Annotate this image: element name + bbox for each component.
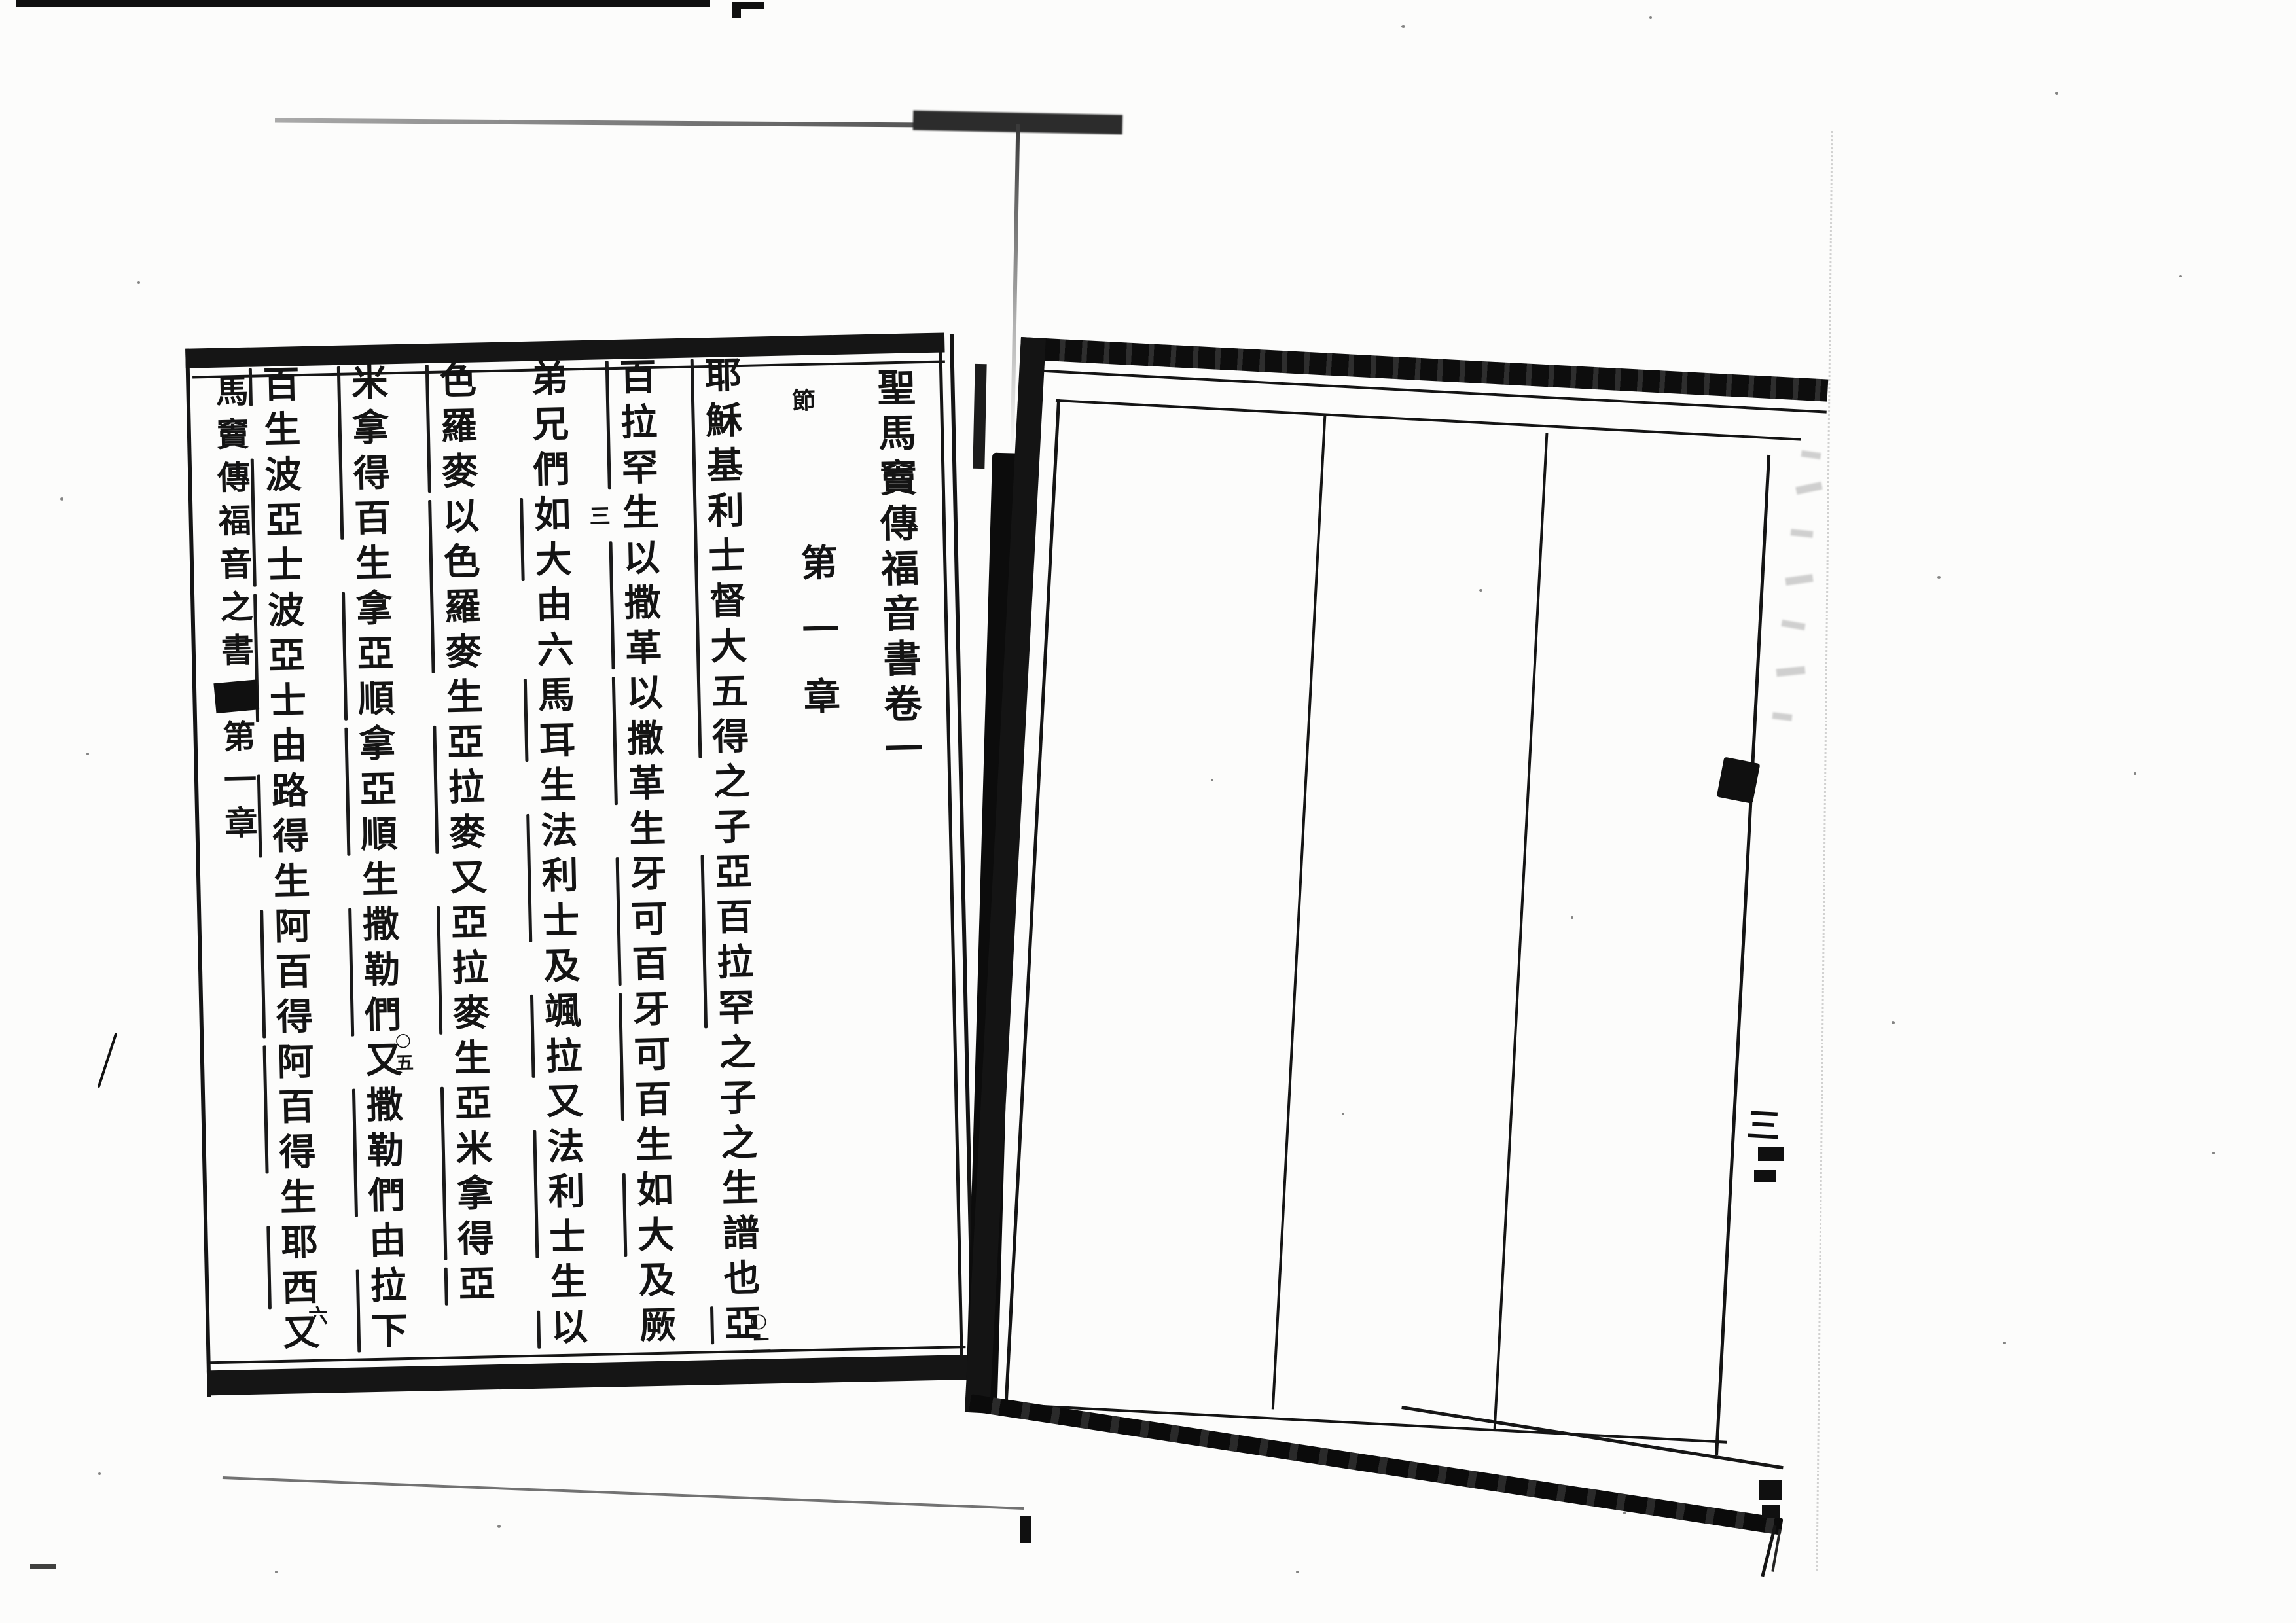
rp-column-line-1 [1272,416,1327,1409]
scanned-book-spread: 聖馬竇傳福音書卷一 節 第一章 耶穌基利士督大五得之子亞百拉罕之子之生譜也亞 百… [0,0,2296,1623]
running-title-text: 馬竇傳福音之書 [203,374,262,677]
page-number-smudge-1 [1758,1147,1784,1161]
rp-bottom-right-blob-2 [1762,1505,1780,1518]
title-column: 聖馬竇傳福音書卷一 [860,367,944,1422]
gutter-bottom-mark [1020,1516,1031,1543]
chapter-heading-column: 第一章 [785,543,851,767]
fold-chapter-text: 第一章 [210,719,265,849]
book-title-text: 聖馬竇傳福音書卷一 [860,367,934,775]
gutter-ink-bar-top [973,364,986,469]
frame-right-line-1 [939,334,963,1355]
paper-right-edge [1816,131,1833,1571]
right-page [963,337,1835,1478]
body-column-2-text: 百拉罕生以撒革以撒革生牙可百牙可百生如大及厥 [604,357,687,1351]
body-column-5: 米拿得百生拿亞順拿亞順生撒勒們又撒勒們由拉下 [336,363,420,1418]
body-column-2: 百拉罕生以撒革以撒革生牙可百牙可百生如大及厥 [604,357,688,1412]
rp-right-inner-line [1715,455,1770,1455]
body-column-5-text: 米拿得百生拿亞順拿亞順生撒勒們又撒勒們由拉下 [336,363,418,1357]
rp-column-line-2 [1494,433,1549,1429]
verse-marker-5: ○五 [389,1029,416,1075]
fold-column-running-title: 馬竇傳福音之書 [203,373,271,688]
fold-column-chapter: 第一章 [210,719,276,916]
verse-marker-2: ○二 [744,1309,774,1357]
body-column-1-text: 耶穌基利士督大五得之子亞百拉罕之子之生譜也亞 [689,355,772,1350]
rp-bottom-right-blob-1 [1759,1480,1782,1500]
body-column-1: 耶穌基利士督大五得之子亞百拉罕之子之生譜也亞 [689,355,773,1410]
chapter-heading-text: 第一章 [785,543,852,745]
corner-mark [30,1564,56,1569]
verse-section-mark: 節 [785,387,819,412]
fold-ink-block [213,679,259,713]
page-number-mark: 三 [1735,1106,1786,1143]
rp-right-border-blob [1717,757,1761,804]
verse-marker-6: 六 [301,1305,331,1325]
page-number-smudge-2 [1754,1170,1776,1182]
verse-marker-3: 三 [583,505,614,526]
body-column-4: 色羅麥以色羅麥生亞拉麥又亞拉麥生亞米拿得亞 [424,361,508,1416]
